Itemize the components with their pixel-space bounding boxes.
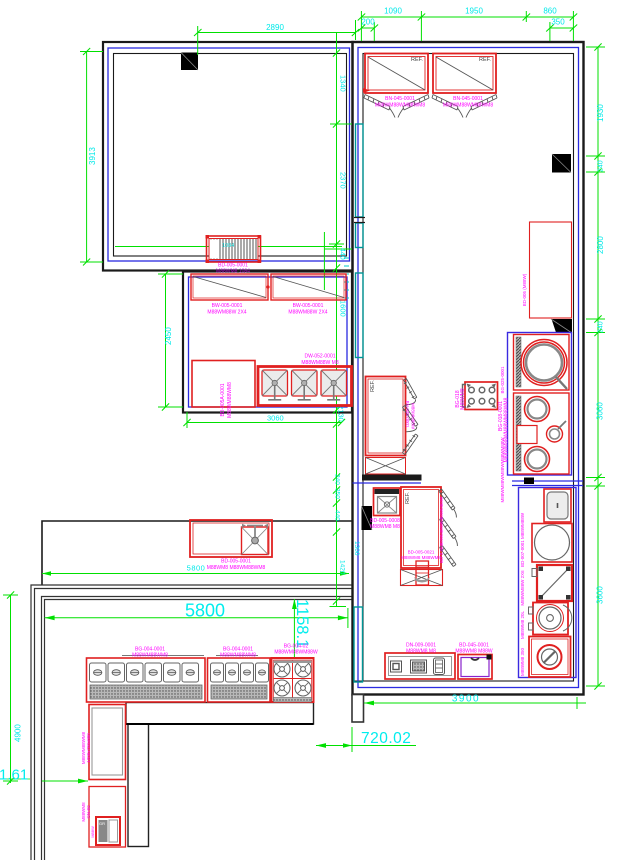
svg-text:M88WM88WM8: M88WM88WM8 — [132, 653, 168, 659]
svg-text:BD-005-0001: BD-005-0001 — [221, 559, 251, 565]
svg-text:440: 440 — [339, 248, 346, 260]
svg-text:REF.: REF. — [370, 380, 376, 392]
svg-text:M88WM8 M8: M88WM8 M8 — [370, 524, 400, 530]
svg-text:3913: 3913 — [88, 147, 97, 165]
svg-text:BW-005-0001: BW-005-0001 — [293, 303, 324, 309]
svg-text:3900: 3900 — [452, 694, 480, 705]
svg-text:M88WM8 M8: M88WM8 M8 — [406, 649, 436, 655]
svg-text:BW-005-0001: BW-005-0001 — [212, 303, 243, 309]
svg-text:240: 240 — [598, 160, 605, 172]
svg-text:1950: 1950 — [465, 7, 483, 16]
svg-text:720.02: 720.02 — [361, 730, 411, 747]
svg-text:GR: GR — [99, 821, 105, 826]
svg-text:440: 440 — [334, 510, 341, 521]
svg-text:BD-007-0001 M88WM88W: BD-007-0001 M88WM88W — [520, 512, 525, 567]
svg-text:M88WM8 M88WM88WM8: M88WM8 M88WM88WM8 — [207, 565, 266, 571]
svg-text:BD-2.5M88WM88WM88WM88W: BD-2.5M88WM88WM88WM88W — [439, 496, 444, 563]
svg-text:M88WM88WM88WM8: M88WM88WM88WM8 — [375, 103, 426, 109]
svg-text:M88WM88W M8: M88WM88W M8 — [301, 360, 338, 366]
svg-text:2370: 2370 — [339, 172, 348, 189]
svg-text:3060: 3060 — [596, 402, 605, 420]
svg-text:5800: 5800 — [187, 564, 206, 573]
svg-text:DW-052-0001: DW-052-0001 — [304, 354, 335, 360]
svg-text:REF.: REF. — [405, 492, 411, 504]
svg-text:M88WM88WM88WM8: M88WM88WM88WM8 — [443, 103, 494, 109]
svg-text:M88WM88WM88WM88WM88W: M88WM88WM88WM88WM88W — [500, 437, 505, 503]
svg-text:1158.1: 1158.1 — [293, 599, 311, 648]
svg-text:M88WM88WM8: M88WM88WM8 — [227, 382, 233, 418]
svg-text:REF.: REF. — [479, 57, 491, 63]
svg-text:M88W: M88W — [90, 826, 95, 838]
svg-text:GN-02: GN-02 — [86, 805, 91, 819]
svg-text:1930: 1930 — [596, 104, 605, 122]
svg-text:M88WM8 350: M88WM8 350 — [520, 647, 525, 676]
svg-text:1.61: 1.61 — [0, 767, 28, 784]
svg-text:350: 350 — [334, 488, 341, 499]
svg-text:BN-045-0001: BN-045-0001 — [453, 96, 483, 102]
svg-text:BN-045-0001: BN-045-0001 — [385, 96, 415, 102]
svg-text:M88WM8 1084: M88WM8 1084 — [216, 269, 250, 275]
svg-text:M88WM88W 2X6: M88WM88W 2X6 — [520, 570, 525, 606]
svg-text:240: 240 — [334, 474, 341, 485]
svg-text:2130: 2130 — [337, 405, 346, 422]
svg-text:350: 350 — [551, 18, 565, 27]
svg-text:M88WM88WM88W: M88WM88WM88W — [274, 650, 318, 656]
svg-text:240: 240 — [598, 321, 605, 333]
svg-text:M88WM88W 2X4: M88WM88W 2X4 — [207, 310, 246, 316]
svg-text:M88WM88WM8: M88WM88WM8 — [220, 653, 256, 659]
svg-text:200: 200 — [361, 18, 375, 27]
svg-text:1200x700x800: 1200x700x800 — [86, 733, 91, 763]
svg-text:M88WM8: M88WM8 — [460, 388, 466, 410]
svg-text:BN-045-0001: BN-045-0001 — [405, 401, 410, 428]
svg-text:3600: 3600 — [596, 586, 605, 604]
svg-text:1084: 1084 — [222, 243, 234, 249]
svg-text:M88WM8 20L: M88WM8 20L — [520, 610, 525, 639]
svg-text:M88WM8 M88WM8: M88WM8 M88WM8 — [401, 555, 441, 560]
svg-text:BG-025-0001: BG-025-0001 — [500, 366, 505, 394]
svg-text:BD-005-0021: BD-005-0021 — [408, 550, 435, 555]
svg-text:M88WM8 M88W: M88WM8 M88W — [455, 649, 493, 655]
svg-text:1600: 1600 — [339, 300, 348, 317]
svg-text:1090: 1090 — [384, 7, 402, 16]
svg-text:3060: 3060 — [267, 414, 284, 423]
svg-text:1340: 1340 — [339, 75, 348, 92]
svg-text:2800: 2800 — [596, 236, 605, 254]
svg-text:BD-005A-0001: BD-005A-0001 — [220, 383, 226, 416]
svg-text:M88WM88W: M88WM88W — [411, 403, 416, 430]
svg-text:5800: 5800 — [185, 601, 225, 621]
svg-text:1300: 1300 — [353, 541, 360, 556]
svg-text:M88WM88W 2X4: M88WM88W 2X4 — [288, 310, 327, 316]
svg-text:4900: 4900 — [14, 724, 23, 742]
svg-text:860: 860 — [543, 7, 557, 16]
svg-text:BD-005 (M88W): BD-005 (M88W) — [522, 273, 527, 306]
svg-text:2890: 2890 — [266, 23, 284, 32]
svg-text:REF.: REF. — [411, 57, 423, 63]
svg-text:1420: 1420 — [339, 560, 346, 575]
svg-text:2450: 2450 — [164, 327, 173, 345]
